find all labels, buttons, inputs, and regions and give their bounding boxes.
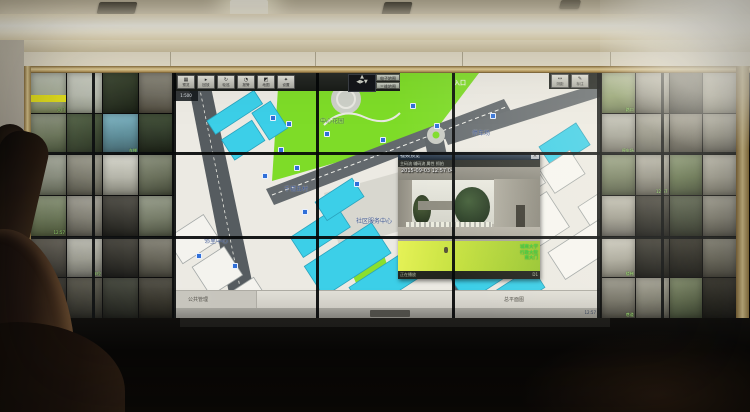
- map-camera-marker[interactable]: [410, 103, 416, 109]
- map-label: 中心花园: [320, 119, 344, 125]
- camera-tile[interactable]: 大门: [31, 73, 66, 113]
- camera-tile[interactable]: [670, 237, 703, 277]
- map-label: 停车场: [472, 131, 490, 137]
- control-room-photo: 大门车棚12:57车位: [0, 0, 750, 412]
- video-wall: 大门车棚12:57车位: [31, 73, 736, 332]
- popup-video[interactable]: 2015-09-03 12:57:04 城南大学 行政大院 南大门: [398, 167, 540, 271]
- panel-seam: [610, 52, 611, 66]
- toolbar-button-报警[interactable]: ◔报警: [237, 75, 255, 89]
- camera-tile[interactable]: [139, 237, 174, 277]
- tree: [454, 187, 490, 227]
- camera-tile[interactable]: [103, 196, 138, 236]
- ceiling-vent: [559, 0, 581, 9]
- map-camera-marker[interactable]: [324, 131, 330, 137]
- gate-window: [516, 205, 525, 229]
- camera-tile[interactable]: [103, 155, 138, 195]
- videowall-frame-right: [736, 66, 749, 342]
- map-camera-marker[interactable]: [232, 263, 238, 269]
- camera-tile[interactable]: [103, 237, 138, 277]
- cove-light: [0, 14, 750, 40]
- monitor-bezel: [31, 152, 736, 155]
- camera-tile[interactable]: [103, 73, 138, 113]
- panel-seam: [462, 52, 463, 66]
- camera-osd-label: 12:57: [53, 231, 65, 235]
- video-preview-popup[interactable]: 视频预览 × 主码流 辅码流 属性 抓拍: [398, 152, 540, 279]
- map-display: ▦预览▸回放↻轮巡◔报警◩地图✦设置 ▲ ◀▶▼ 电子地图三维地图 ↔测距✎标注…: [174, 73, 600, 318]
- wall-panel-strip: [0, 52, 750, 66]
- camera-tile[interactable]: [67, 73, 102, 113]
- camera-tile[interactable]: [703, 278, 736, 318]
- map-camera-marker[interactable]: [302, 209, 308, 215]
- camera-tile[interactable]: [670, 155, 703, 195]
- monitor-bezel: [316, 73, 319, 318]
- monitor-bezel: [31, 236, 736, 239]
- map-label: 千禧五村: [284, 187, 308, 193]
- map-camera-marker[interactable]: [380, 137, 386, 143]
- camera-tile[interactable]: [67, 155, 102, 195]
- taskbar-widget[interactable]: [370, 310, 410, 317]
- toolbar-button-预览[interactable]: ▦预览: [177, 75, 195, 89]
- map-camera-marker[interactable]: [196, 253, 202, 259]
- taskbar-clock: 12:57: [584, 310, 596, 316]
- person-on-lawn: [444, 247, 448, 253]
- camera-tile[interactable]: 巷道: [602, 278, 635, 318]
- map-camera-marker[interactable]: [354, 181, 360, 187]
- video-timestamp: 2015-09-03 12:57:04: [401, 169, 454, 174]
- map-camera-marker[interactable]: [294, 165, 300, 171]
- map-mode-button[interactable]: 电子地图: [376, 74, 400, 81]
- camera-tile[interactable]: [67, 114, 102, 154]
- camera-tile[interactable]: [139, 114, 174, 154]
- roundabout-center: [433, 132, 440, 139]
- status-left-cell: [174, 291, 257, 309]
- map-scale-widget: 1:500: [174, 91, 198, 101]
- camera-tile[interactable]: [670, 196, 703, 236]
- toolbar-label: 回放: [202, 83, 209, 87]
- camera-tile[interactable]: [703, 73, 736, 113]
- lawn-strip: [398, 241, 540, 271]
- pan-down-icon[interactable]: ▼: [364, 79, 368, 85]
- status-right-text: 总平面图: [504, 297, 524, 303]
- camera-osd-label: 楼梯: [626, 272, 634, 276]
- camera-tile[interactable]: [602, 196, 635, 236]
- toolbar-label: 报警: [242, 83, 249, 87]
- tool-button-测距[interactable]: ↔测距: [551, 74, 569, 88]
- distant-building: [418, 201, 452, 210]
- status-left-text: 公共管理: [188, 297, 208, 303]
- toolbar-label: 地图: [262, 83, 269, 87]
- toolbar-label: 设置: [282, 83, 289, 87]
- toolbar-label: 轮巡: [222, 83, 229, 87]
- room-shadow-warm: [520, 330, 750, 412]
- monitor-bezel: [597, 73, 601, 318]
- camera-osd-label: 巷道: [626, 313, 634, 317]
- tool-button-标注[interactable]: ✎标注: [571, 74, 589, 88]
- floor-reflection: [180, 318, 610, 327]
- camera-tile[interactable]: 车棚: [103, 114, 138, 154]
- panel-seam: [315, 52, 316, 66]
- camera-tile[interactable]: [103, 278, 138, 318]
- map-camera-marker[interactable]: [490, 113, 496, 119]
- camera-tile[interactable]: [139, 73, 174, 113]
- toolbar-button-回放[interactable]: ▸回放: [197, 75, 215, 89]
- camera-tile[interactable]: [703, 114, 736, 154]
- map-camera-marker[interactable]: [434, 123, 440, 129]
- popup-footer-right: D1: [532, 271, 538, 279]
- map-pan-control[interactable]: ▲ ◀▶▼: [348, 74, 376, 92]
- camera-tile[interactable]: [670, 114, 703, 154]
- camera-caption: 城南大学 行政大院 南大门: [520, 245, 538, 262]
- toolbar-label: 预览: [182, 83, 189, 87]
- camera-tile[interactable]: 车位: [67, 237, 102, 277]
- panel-seam: [170, 52, 171, 66]
- tool-label: 标注: [576, 82, 583, 86]
- camera-tile[interactable]: 楼梯: [602, 237, 635, 277]
- map-camera-marker[interactable]: [270, 115, 276, 121]
- monitor-bezel: [452, 73, 455, 318]
- popup-footer-left: 正在播放: [400, 271, 416, 279]
- map-label: 邻里中心: [204, 239, 228, 245]
- camera-tile[interactable]: [139, 196, 174, 236]
- right-camera-grid: 路口停车场12:57楼梯巷道: [602, 73, 736, 318]
- camera-osd-label: 路口: [626, 108, 634, 112]
- ceiling-fascia: [0, 40, 750, 52]
- toolbar-button-设置[interactable]: ✦设置: [277, 75, 295, 89]
- camera-tile[interactable]: 路口: [602, 73, 635, 113]
- ceiling-vent: [97, 2, 138, 14]
- tree: [413, 195, 431, 225]
- map-camera-marker[interactable]: [262, 173, 268, 179]
- map-label: 入口: [454, 81, 466, 87]
- secondary-toolbar: ↔测距✎标注: [549, 73, 600, 89]
- camera-tile[interactable]: [703, 155, 736, 195]
- camera-tile[interactable]: [67, 196, 102, 236]
- map-mode-buttons: 电子地图三维地图: [376, 74, 400, 90]
- map-camera-marker[interactable]: [286, 121, 292, 127]
- camera-tile[interactable]: 停车场: [602, 114, 635, 154]
- desktop-taskbar[interactable]: 12:57: [174, 308, 600, 318]
- toolbar-button-地图[interactable]: ◩地图: [257, 75, 275, 89]
- camera-osd-label: 大门: [57, 108, 65, 112]
- camera-tile[interactable]: [670, 278, 703, 318]
- toolbar-button-轮巡[interactable]: ↻轮巡: [217, 75, 235, 89]
- overexposed-band: [31, 95, 66, 103]
- map-label: 社区服务中心: [356, 219, 392, 225]
- videowall-frame-top: [24, 66, 750, 73]
- monitor-bezel: [661, 73, 664, 318]
- monitor-bezel: [92, 73, 95, 318]
- camera-tile[interactable]: [670, 73, 703, 113]
- map-status-bar: 公共管理 总平面图: [174, 290, 600, 309]
- popup-footer: 正在播放 D1: [398, 271, 540, 279]
- map-mode-button[interactable]: 三维地图: [376, 82, 400, 89]
- camera-tile[interactable]: [139, 278, 174, 318]
- popup-stream-bar[interactable]: 主码流 辅码流 属性 抓拍: [398, 160, 540, 167]
- camera-tile[interactable]: [67, 278, 102, 318]
- camera-tile[interactable]: [703, 237, 736, 277]
- camera-tile[interactable]: [602, 155, 635, 195]
- camera-tile[interactable]: [139, 155, 174, 195]
- camera-tile[interactable]: [703, 196, 736, 236]
- tool-label: 测距: [556, 82, 563, 86]
- monitor-bezel: [172, 73, 176, 318]
